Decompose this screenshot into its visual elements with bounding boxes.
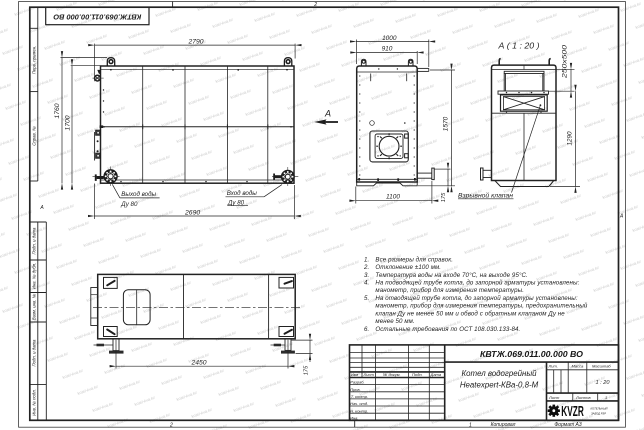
svg-text:2: 2: [169, 422, 173, 428]
svg-text:Листов: Листов: [575, 395, 591, 400]
svg-text:Подп. и дата: Подп. и дата: [31, 227, 36, 255]
svg-text:KVZR: KVZR: [561, 404, 584, 420]
svg-text:Инв. № подл.: Инв. № подл.: [31, 389, 36, 416]
svg-text:910: 910: [382, 46, 393, 53]
svg-text:КВТЖ.069.011.00.000 ВО: КВТЖ.069.011.00.000 ВО: [480, 350, 584, 359]
svg-text:4.: 4.: [364, 280, 369, 287]
svg-text:1570: 1570: [443, 116, 450, 131]
svg-text:Инв.: Инв.: [350, 415, 358, 420]
svg-text:Лит.: Лит.: [548, 364, 558, 369]
svg-text:1700: 1700: [64, 115, 71, 130]
svg-text:Т. контр.: Т. контр.: [351, 394, 368, 399]
svg-text:Нач. отд.: Нач. отд.: [350, 401, 368, 406]
svg-text:Масса: Масса: [572, 364, 585, 369]
svg-text:1760: 1760: [54, 103, 61, 118]
svg-text:2450: 2450: [190, 360, 206, 367]
svg-text:Все размеры для справок.: Все размеры для справок.: [375, 256, 453, 263]
svg-text:1 : 20: 1 : 20: [596, 380, 611, 386]
svg-text:Подп. и дата: Подп. и дата: [31, 339, 36, 367]
svg-text:Лист: Лист: [548, 395, 560, 400]
svg-text:1290: 1290: [566, 131, 573, 146]
svg-text:клапан Ду не менее 50 мм и обв: клапан Ду не менее 50 мм и обвод с обрат…: [375, 310, 565, 317]
svg-text:Перв. примен.: Перв. примен.: [31, 46, 36, 75]
svg-text:Дата: Дата: [430, 372, 442, 377]
svg-text:2.: 2.: [363, 264, 369, 271]
svg-text:ЗАВОД РЗР: ЗАВОД РЗР: [591, 411, 606, 415]
svg-text:1: 1: [469, 422, 472, 428]
svg-text:менее 50 мм.: менее 50 мм.: [375, 318, 414, 325]
svg-text:А ( 1 : 20 ): А ( 1 : 20 ): [497, 41, 540, 50]
svg-text:5.: 5.: [364, 295, 369, 302]
svg-text:Взам. инв. №: Взам. инв. №: [31, 293, 36, 320]
svg-text:Лист: Лист: [363, 372, 375, 377]
svg-text:Разраб.: Разраб.: [350, 380, 364, 385]
svg-text:Инв. № дубл.: Инв. № дубл.: [31, 263, 36, 289]
svg-text:А: А: [324, 108, 331, 118]
svg-text:Формат А3: Формат А3: [554, 422, 582, 428]
svg-text:Н. контр.: Н. контр.: [350, 408, 368, 413]
svg-text:1100: 1100: [386, 194, 400, 201]
svg-text:манометр, прибор для измерения: манометр, прибор для измерения температу…: [375, 303, 587, 310]
svg-text:2: 2: [313, 2, 317, 8]
svg-text:Котел водогрейный: Котел водогрейный: [461, 369, 537, 378]
svg-text:250х500: 250х500: [562, 44, 568, 79]
svg-text:На отводящей трубе котла, до з: На отводящей трубе котла, до запорной ар…: [375, 295, 577, 302]
svg-text:Отклонение ±100 мм.: Отклонение ±100 мм.: [375, 264, 441, 271]
svg-text:Масштаб: Масштаб: [592, 364, 611, 369]
svg-text:1000: 1000: [382, 35, 397, 42]
svg-text:175: 175: [441, 192, 447, 202]
svg-text:Пров.: Пров.: [350, 387, 361, 392]
svg-text:1.: 1.: [364, 256, 369, 263]
svg-text:2790: 2790: [187, 39, 203, 46]
svg-text:На подводящей трубе котла, до: На подводящей трубе котла, до запорной а…: [375, 280, 579, 287]
svg-text:Взрывной клапан: Взрывной клапан: [458, 191, 514, 199]
svg-text:манометр, прибор для измерения: манометр, прибор для измерения температу…: [375, 287, 524, 294]
svg-text:Вход воды: Вход воды: [227, 190, 257, 197]
svg-text:Изм: Изм: [351, 372, 359, 377]
svg-text:175: 175: [303, 365, 309, 375]
svg-text:Ду 80: Ду 80: [120, 201, 138, 208]
svg-text:2690: 2690: [184, 210, 200, 217]
svg-text:Heatexpert-КВа-0,8-М: Heatexpert-КВа-0,8-М: [460, 380, 539, 389]
svg-text:Остальные требования по ОСТ 10: Остальные требования по ОСТ 108.030.133-…: [375, 326, 520, 333]
svg-text:1: 1: [605, 395, 607, 400]
svg-text:А: А: [39, 205, 44, 211]
svg-text:3.: 3.: [364, 272, 369, 279]
svg-text:А: А: [619, 214, 624, 220]
svg-text:№ докум.: № докум.: [383, 372, 401, 377]
svg-text:Справ. №: Справ. №: [31, 126, 36, 146]
svg-text:КВТЖ.069.011.00.000 ВО: КВТЖ.069.011.00.000 ВО: [53, 13, 141, 22]
svg-text:6.: 6.: [364, 326, 369, 333]
svg-text:Температура воды на входе 70°С: Температура воды на входе 70°С, на выход…: [375, 272, 527, 279]
svg-text:Подп.: Подп.: [412, 372, 423, 377]
svg-text:КОТЕЛЬНЫЙ: КОТЕЛЬНЫЙ: [591, 407, 608, 411]
svg-text:Копировал: Копировал: [491, 422, 516, 428]
svg-text:Выход воды: Выход воды: [121, 191, 156, 198]
